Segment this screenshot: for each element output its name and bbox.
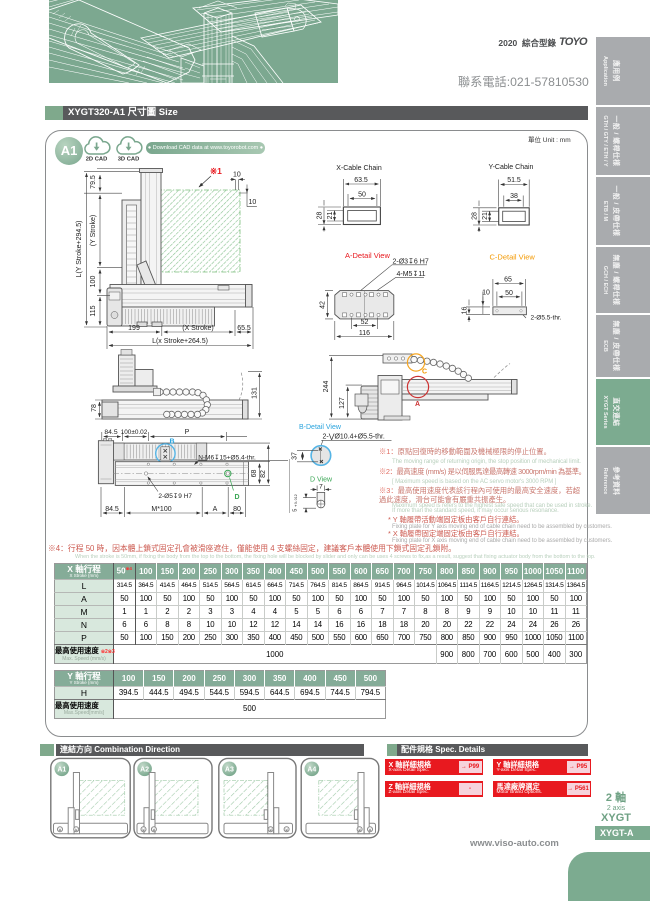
svg-text:80: 80 bbox=[233, 506, 241, 513]
svg-text:37: 37 bbox=[292, 452, 299, 460]
svg-text:L(Y Stroke+294.5): L(Y Stroke+294.5) bbox=[76, 221, 83, 278]
svg-text:N-M6↧15+Ø5.4-thr.: N-M6↧15+Ø5.4-thr. bbox=[198, 453, 256, 461]
svg-text:A: A bbox=[213, 506, 218, 513]
svg-text:B-Detail View: B-Detail View bbox=[299, 424, 342, 431]
svg-text:100±0.02: 100±0.02 bbox=[121, 429, 148, 436]
svg-text:2-⋁Ø10.4+Ø5.5-thr.: 2-⋁Ø10.4+Ø5.5-thr. bbox=[323, 433, 385, 441]
svg-text:51.5: 51.5 bbox=[507, 177, 521, 184]
svg-text:65.5: 65.5 bbox=[237, 325, 251, 332]
svg-text:2-Ø5.5-thr.: 2-Ø5.5-thr. bbox=[531, 315, 562, 322]
svg-text:D View: D View bbox=[310, 477, 333, 484]
svg-text:2-Ø3↧6 H7: 2-Ø3↧6 H7 bbox=[393, 258, 429, 266]
svg-text:84.5: 84.5 bbox=[105, 506, 119, 513]
svg-text:A2: A2 bbox=[140, 767, 149, 774]
svg-text:63.5: 63.5 bbox=[354, 177, 368, 184]
svg-text:42: 42 bbox=[320, 301, 327, 309]
svg-text:L(x Stroke+264.5): L(x Stroke+264.5) bbox=[152, 338, 208, 345]
svg-text:28: 28 bbox=[317, 212, 324, 220]
svg-text:28: 28 bbox=[472, 212, 479, 220]
svg-text:127: 127 bbox=[339, 397, 346, 409]
svg-text:116: 116 bbox=[359, 330, 370, 337]
svg-text:A1: A1 bbox=[57, 767, 66, 774]
svg-text:Y-Cable Chain: Y-Cable Chain bbox=[489, 164, 534, 171]
svg-text:131: 131 bbox=[252, 387, 259, 399]
svg-text:A: A bbox=[415, 401, 420, 408]
svg-text:7: 7 bbox=[319, 484, 323, 491]
svg-text:199: 199 bbox=[128, 325, 140, 332]
svg-text:A-Detail View: A-Detail View bbox=[345, 251, 390, 260]
svg-text:M*100: M*100 bbox=[151, 506, 171, 513]
svg-text:21: 21 bbox=[482, 212, 489, 220]
svg-text:A4: A4 bbox=[307, 767, 316, 774]
svg-text:X-Cable Chain: X-Cable Chain bbox=[336, 165, 382, 172]
svg-text:82: 82 bbox=[260, 470, 267, 478]
svg-text:115: 115 bbox=[90, 305, 97, 316]
svg-text:C: C bbox=[422, 369, 427, 376]
svg-text:21: 21 bbox=[327, 212, 334, 220]
svg-text:78: 78 bbox=[91, 404, 98, 412]
svg-text:5 ₊₀.₀₁₂: 5 ₊₀.₀₁₂ bbox=[293, 494, 299, 512]
svg-text:38: 38 bbox=[510, 193, 518, 200]
svg-text:D: D bbox=[235, 494, 240, 501]
svg-text:10: 10 bbox=[249, 199, 257, 206]
svg-text:C-Detail View: C-Detail View bbox=[490, 253, 536, 262]
svg-text:244: 244 bbox=[323, 381, 330, 393]
svg-text:68: 68 bbox=[251, 470, 258, 478]
svg-text:(Y Stroke): (Y Stroke) bbox=[90, 215, 97, 246]
svg-text:79.5: 79.5 bbox=[90, 175, 97, 189]
svg-text:2D CAD: 2D CAD bbox=[86, 157, 108, 163]
svg-text:84.5: 84.5 bbox=[104, 429, 117, 436]
svg-text:A3: A3 bbox=[225, 767, 234, 774]
svg-text:※1: ※1 bbox=[210, 166, 222, 176]
svg-text:50: 50 bbox=[505, 290, 513, 297]
svg-text:(X Stroke): (X Stroke) bbox=[182, 325, 214, 332]
svg-text:100: 100 bbox=[90, 276, 97, 288]
svg-text:10: 10 bbox=[482, 290, 490, 297]
svg-text:P: P bbox=[185, 429, 190, 436]
svg-text:B: B bbox=[170, 439, 175, 446]
svg-text:16: 16 bbox=[462, 307, 469, 315]
svg-text:2-Ø5↧9 H7: 2-Ø5↧9 H7 bbox=[158, 492, 192, 500]
svg-text:3D CAD: 3D CAD bbox=[118, 157, 140, 163]
svg-text:50: 50 bbox=[358, 192, 366, 199]
svg-text:52: 52 bbox=[361, 319, 369, 326]
svg-text:10: 10 bbox=[233, 172, 241, 179]
svg-text:4-M5↧11: 4-M5↧11 bbox=[397, 270, 426, 278]
svg-text:65: 65 bbox=[504, 277, 512, 284]
